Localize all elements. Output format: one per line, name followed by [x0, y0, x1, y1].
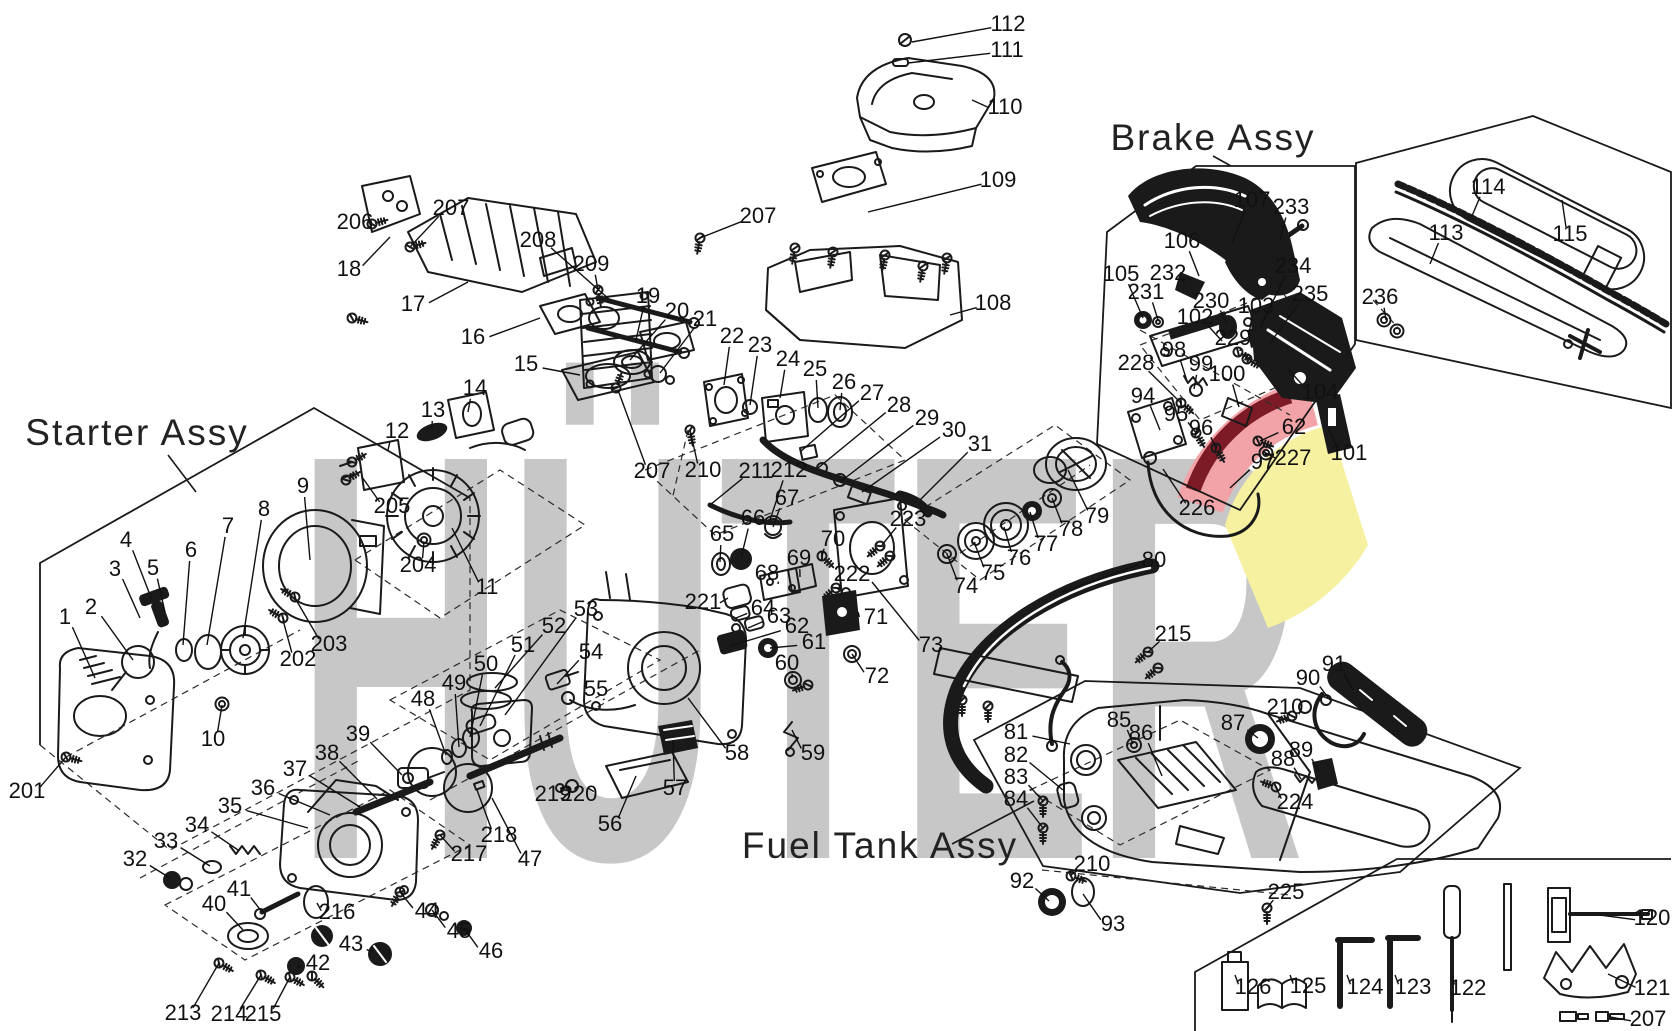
- leader-line-42-3: [123, 579, 140, 618]
- part-callout-125-226: 226: [1179, 495, 1216, 520]
- leader-line-123-106: [1189, 251, 1199, 276]
- part-callout-26-28: 28: [887, 392, 911, 417]
- part-callout-75-52: 52: [542, 613, 566, 638]
- part-callout-46-7: 7: [222, 513, 234, 538]
- part-callout-23-25: 25: [803, 356, 827, 381]
- part-callout-44-5: 5: [147, 555, 159, 580]
- part-callout-33-210: 210: [685, 457, 722, 482]
- part-callout-68-216: 216: [319, 899, 356, 924]
- part-callout-74-51: 51: [511, 632, 535, 657]
- part-callout-48-9: 9: [297, 473, 309, 498]
- part-callout-146-87: 87: [1221, 710, 1245, 735]
- part-callout-20-22: 22: [720, 323, 744, 348]
- part-callout-63-45: 45: [447, 918, 471, 943]
- part-callout-61-43: 43: [339, 931, 363, 956]
- saw-chain-drawing: [1396, 184, 1666, 332]
- part-callout-138-115: 115: [1552, 221, 1587, 246]
- part-callout-2-110: 110: [987, 94, 1022, 119]
- part-callout-100-71: 71: [864, 604, 888, 629]
- part-callout-82-218: 218: [481, 822, 518, 847]
- part-callout-5-207: 207: [740, 203, 777, 228]
- part-callout-50-32: 32: [123, 846, 147, 871]
- part-callout-120-103: 103: [1238, 293, 1275, 318]
- leader-line-9-17: [429, 282, 468, 303]
- part-callout-22-24: 24: [776, 346, 800, 371]
- part-callout-14-14: 14: [463, 375, 487, 400]
- part-callout-145-86: 86: [1129, 720, 1153, 745]
- leader-line-51-33: [181, 848, 210, 866]
- part-callout-159-122: 122: [1450, 975, 1487, 1000]
- part-callout-158-121: 121: [1634, 975, 1671, 1000]
- part-callout-15-13: 13: [421, 397, 445, 422]
- part-callout-137-114: 114: [1470, 174, 1505, 199]
- starter-assy-title: Starter Assy: [25, 412, 248, 453]
- part-callout-128-229: 229: [1215, 325, 1252, 350]
- part-callout-88-59: 59: [801, 740, 825, 765]
- part-callout-84-220: 220: [561, 781, 598, 806]
- filter-plate-drawing: [812, 152, 886, 202]
- part-callout-94-65: 65: [710, 521, 734, 546]
- part-callout-29-31: 31: [968, 431, 992, 456]
- part-callout-28-30: 30: [942, 417, 966, 442]
- leader-line-2-110: [972, 100, 988, 107]
- part-callout-101-72: 72: [865, 663, 889, 688]
- part-callout-51-33: 33: [154, 828, 178, 853]
- part-callout-139-236: 236: [1362, 284, 1399, 309]
- part-callout-70-47: 47: [518, 846, 542, 871]
- screwdriver-icon: [1444, 886, 1460, 1022]
- part-callout-25-27: 27: [860, 380, 884, 405]
- part-callout-156-225: 225: [1268, 879, 1305, 904]
- leader-line-139-236: [1384, 308, 1386, 320]
- part-callout-4-108: 108: [975, 290, 1012, 315]
- leader-line-41-2: [101, 616, 133, 660]
- leader-line-8-18: [363, 237, 390, 266]
- part-callout-96-67: 67: [775, 485, 799, 510]
- part-callout-59-41: 41: [227, 876, 251, 901]
- part-callout-140-81: 81: [1004, 719, 1028, 744]
- part-callout-149-90: 90: [1296, 665, 1320, 690]
- part-callout-121-104: 104: [1302, 379, 1339, 404]
- part-callout-12-209: 209: [573, 251, 610, 276]
- part-callout-106-77: 77: [1034, 531, 1058, 556]
- part-callout-154-210: 210: [1074, 851, 1111, 876]
- part-callout-109-80: 80: [1142, 547, 1166, 572]
- part-callout-135-62: 62: [1282, 414, 1306, 439]
- part-callout-38-202: 202: [280, 646, 317, 671]
- part-callout-111-94: 94: [1131, 383, 1155, 408]
- part-callout-93-64: 64: [751, 595, 775, 620]
- part-callout-152-93: 93: [1101, 911, 1125, 936]
- part-callout-73-50: 50: [474, 651, 498, 676]
- part-callout-71-48: 48: [411, 686, 435, 711]
- part-callout-86-222: 222: [834, 561, 871, 586]
- leader-line-47-8: [243, 520, 261, 638]
- part-callout-31-212: 212: [771, 457, 808, 482]
- part-callout-112-95: 95: [1164, 401, 1188, 426]
- part-callout-30-211: 211: [738, 458, 773, 483]
- part-callout-13-15: 15: [514, 351, 538, 376]
- part-callout-79-56: 56: [598, 811, 622, 836]
- part-callout-104-75: 75: [981, 560, 1005, 585]
- part-callout-32-207: 207: [634, 458, 671, 483]
- part-callout-18-20: 20: [665, 298, 689, 323]
- part-callout-144-85: 85: [1107, 707, 1131, 732]
- exploded-parts-diagram: HÜTER: [0, 0, 1672, 1031]
- part-callout-10-16: 16: [461, 324, 485, 349]
- leader-line-94-65: [720, 545, 721, 562]
- part-callout-24-26: 26: [832, 369, 856, 394]
- part-callout-157-120: 120: [1634, 905, 1671, 930]
- starter-cover-drawing: [58, 648, 174, 790]
- part-callout-40-1: 1: [59, 604, 71, 629]
- part-callout-9-17: 17: [401, 291, 425, 316]
- part-callout-58-40: 40: [202, 891, 226, 916]
- part-callout-153-210: 210: [1267, 694, 1304, 719]
- part-callout-102-73: 73: [919, 632, 943, 657]
- part-callout-127-228: 228: [1118, 350, 1155, 375]
- part-callout-115-98: 98: [1162, 337, 1186, 362]
- spare-screws-icon: [1560, 1012, 1624, 1021]
- part-callout-35-204: 204: [400, 552, 437, 577]
- part-callout-0-112: 112: [990, 11, 1025, 36]
- leader-line-46-7: [207, 537, 225, 645]
- part-callout-89-60: 60: [775, 650, 799, 675]
- part-callout-81-58: 58: [725, 740, 749, 765]
- part-callout-53-35: 35: [218, 793, 242, 818]
- leader-line-45-6: [183, 561, 190, 645]
- part-callout-76-53: 53: [574, 596, 598, 621]
- part-callout-8-18: 18: [337, 256, 361, 281]
- part-callout-19-21: 21: [693, 306, 717, 331]
- part-callout-6-206: 206: [337, 209, 374, 234]
- part-callout-55-37: 37: [283, 756, 307, 781]
- part-callout-43-4: 4: [120, 527, 132, 552]
- part-callout-67-215: 215: [245, 1001, 282, 1026]
- part-callout-148-89: 89: [1289, 737, 1313, 762]
- part-callout-164-207: 207: [1630, 1006, 1667, 1031]
- leader-line-3-109: [868, 184, 982, 212]
- part-callout-72-49: 49: [442, 670, 466, 695]
- part-callout-98-69: 69: [787, 545, 811, 570]
- part-callout-162-125: 125: [1290, 973, 1327, 998]
- leader-line-137-114: [1472, 197, 1480, 216]
- part-callout-126-227: 227: [1275, 445, 1312, 470]
- part-callout-27-29: 29: [915, 405, 939, 430]
- part-callout-123-106: 106: [1164, 228, 1201, 253]
- part-callout-16-12: 12: [385, 418, 409, 443]
- leader-line-52-34: [211, 832, 238, 850]
- starter-title-leader: [168, 455, 196, 492]
- part-callout-131-232: 232: [1150, 260, 1187, 285]
- part-callout-17-19: 19: [636, 283, 660, 308]
- part-callout-85-221: 221: [685, 589, 722, 614]
- part-callout-47-8: 8: [258, 496, 270, 521]
- part-callout-36-11: 11: [476, 574, 499, 599]
- part-callout-161-124: 124: [1347, 974, 1384, 999]
- part-callout-66-214: 214: [211, 1001, 248, 1026]
- part-callout-65-213: 213: [165, 1000, 202, 1025]
- part-callout-108-79: 79: [1085, 503, 1109, 528]
- leader-line-0-112: [912, 28, 991, 42]
- part-callout-49-10: 10: [201, 726, 225, 751]
- part-callout-103-74: 74: [954, 573, 978, 598]
- part-callout-132-233: 233: [1273, 194, 1310, 219]
- part-callout-114-97: 97: [1251, 449, 1275, 474]
- bumper-spike-icon: [1544, 944, 1636, 998]
- part-callout-34-205: 205: [374, 493, 411, 518]
- part-callout-99-70: 70: [821, 526, 845, 551]
- part-callout-105-76: 76: [1007, 545, 1031, 570]
- part-callout-11-208: 208: [520, 227, 557, 252]
- part-callout-62-44: 44: [415, 898, 439, 923]
- part-callout-143-84: 84: [1004, 786, 1028, 811]
- part-callout-129-230: 230: [1193, 288, 1230, 313]
- part-callout-87-223: 223: [890, 506, 927, 531]
- part-callout-136-113: 113: [1428, 220, 1463, 245]
- part-callout-39-201: 201: [9, 778, 46, 803]
- part-callout-113-96: 96: [1189, 415, 1213, 440]
- part-callout-56-38: 38: [315, 740, 339, 765]
- part-callout-134-235: 235: [1292, 281, 1329, 306]
- part-callout-80-57: 57: [663, 775, 687, 800]
- part-callout-107-78: 78: [1059, 516, 1083, 541]
- part-callout-45-6: 6: [185, 537, 197, 562]
- part-callout-7-207: 207: [433, 195, 470, 220]
- part-callout-42-3: 3: [109, 556, 121, 581]
- part-callout-117-100: 100: [1209, 361, 1246, 386]
- part-callout-57-39: 39: [346, 721, 370, 746]
- part-callout-110-215: 215: [1155, 621, 1192, 646]
- part-callout-160-123: 123: [1395, 974, 1432, 999]
- part-callout-64-46: 46: [479, 938, 503, 963]
- part-callout-52-34: 34: [185, 812, 209, 837]
- starter-pulley-group-drawing: [112, 585, 301, 710]
- leader-line-4-108: [950, 308, 977, 315]
- parts-diagram-page: HÜTER: [0, 0, 1672, 1031]
- part-callout-95-66: 66: [741, 505, 765, 530]
- part-callout-21-23: 23: [748, 332, 772, 357]
- part-callout-1-111: 111: [990, 37, 1023, 62]
- air-filter-cover-drawing: [857, 58, 994, 152]
- part-callout-78-55: 55: [584, 676, 608, 701]
- part-callout-151-92: 92: [1010, 868, 1034, 893]
- leader-line-1-111: [908, 53, 990, 63]
- leader-line-5-207: [700, 221, 742, 238]
- leader-line-40-1: [72, 627, 95, 678]
- part-callout-3-109: 109: [980, 167, 1017, 192]
- part-callout-54-36: 36: [251, 775, 275, 800]
- part-callout-60-42: 42: [306, 950, 330, 975]
- part-callout-124-107: 107: [1234, 187, 1271, 212]
- part-callout-155-224: 224: [1277, 789, 1314, 814]
- part-callout-150-91: 91: [1322, 651, 1346, 676]
- part-callout-97-68: 68: [755, 560, 779, 585]
- part-callout-118-101: 101: [1331, 440, 1368, 465]
- brake-assy-title: Brake Assy: [1110, 117, 1315, 158]
- part-callout-133-234: 234: [1275, 253, 1312, 278]
- part-callout-163-126: 126: [1235, 974, 1272, 999]
- part-callout-77-54: 54: [579, 639, 603, 664]
- part-callout-41-2: 2: [85, 594, 97, 619]
- file-icon: [1504, 884, 1511, 970]
